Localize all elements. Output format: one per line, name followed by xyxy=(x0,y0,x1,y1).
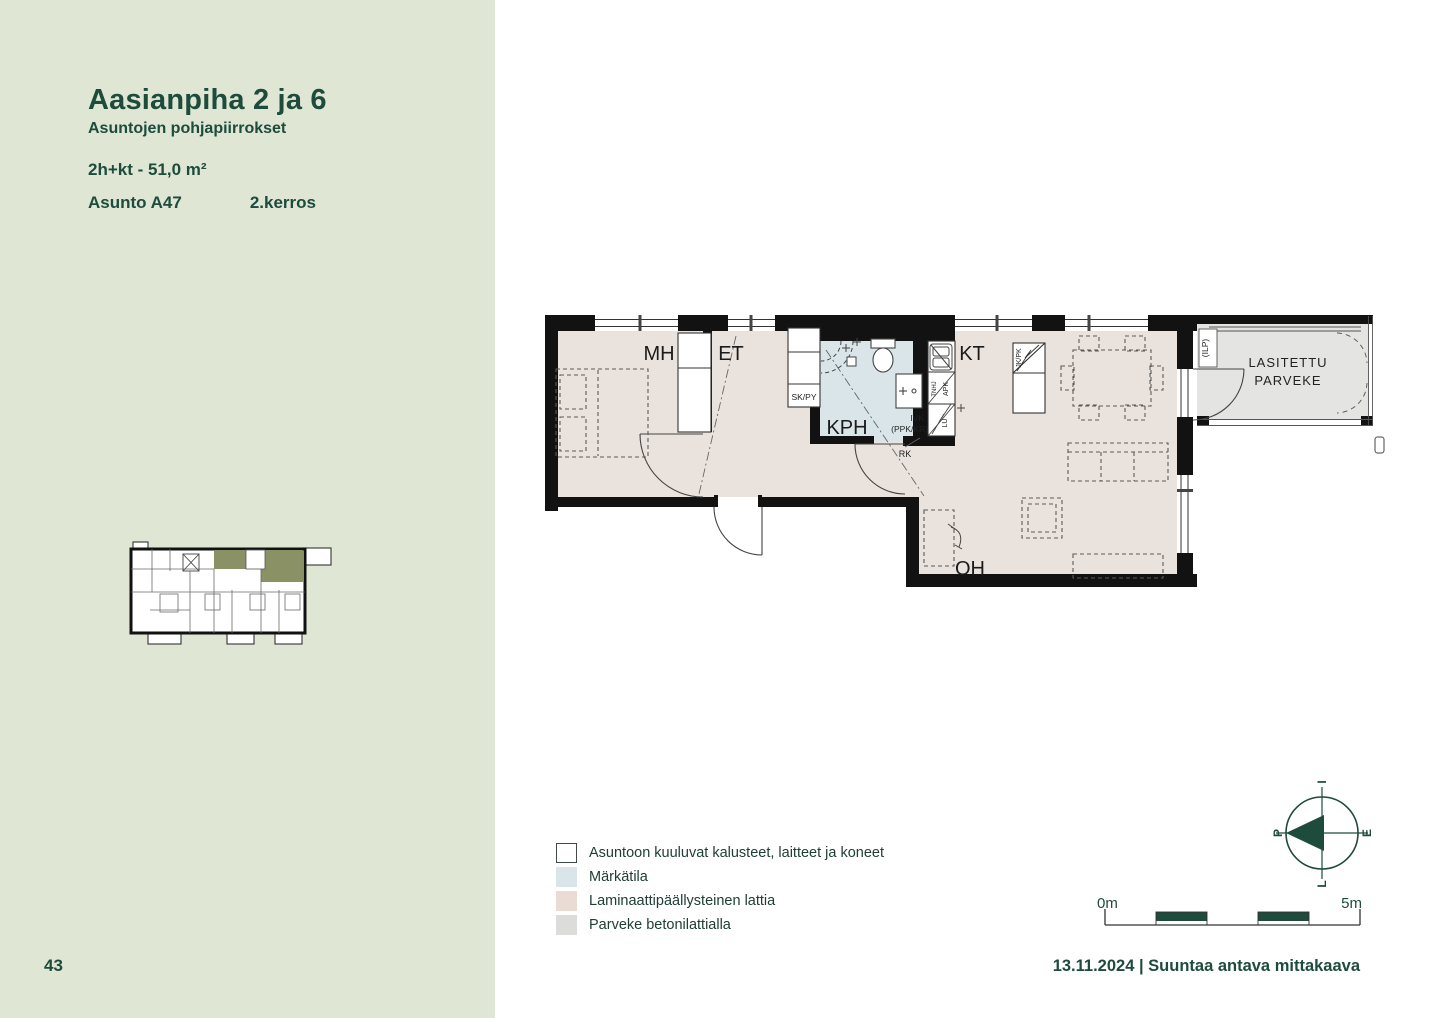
page-subtitle: Asuntojen pohjapiirrokset xyxy=(88,120,327,138)
room-label-kitchen: KT xyxy=(959,343,985,365)
overview-stairwell-icon xyxy=(183,554,199,571)
compass-label-right: E xyxy=(1360,829,1374,837)
toilet xyxy=(871,339,895,372)
legend-label: Laminaattipäällysteinen lattia xyxy=(589,893,775,909)
footer-note: 13.11.2024 | Suuntaa antava mittakaava xyxy=(1053,957,1360,976)
balcony-label-line2: PARVEKE xyxy=(1254,373,1321,388)
living-room-window xyxy=(1177,475,1193,553)
room-label-entry: ET xyxy=(718,343,744,365)
balcony-floor xyxy=(1197,324,1369,420)
room-label-living: OH xyxy=(955,558,985,580)
legend-item: Parveke betonilattialla xyxy=(556,913,884,937)
heat-pump-label: (ILP) xyxy=(1200,339,1210,358)
compass-label-bottom: L xyxy=(1315,880,1329,887)
legend-label: Asuntoon kuuluvat kalusteet, laitteet ja… xyxy=(589,845,884,861)
overview-wing-extension xyxy=(303,548,331,565)
compass-icon: I P E L xyxy=(1270,775,1380,890)
scale-start-label: 0m xyxy=(1097,895,1118,912)
legend-swatch-laminate xyxy=(556,891,577,911)
legend-label: Parveke betonilattialla xyxy=(589,917,731,933)
dishwasher-label: APK xyxy=(943,382,950,396)
compass-north-needle xyxy=(1286,815,1324,851)
unit-floor: 2.kerros xyxy=(250,193,316,213)
bathroom-sink xyxy=(896,374,922,408)
balcony-door xyxy=(1177,369,1193,417)
legend-swatch-wet-room xyxy=(556,867,577,887)
legend-item: Laminaattipäällysteinen lattia xyxy=(556,889,884,913)
room-label-bedroom: MH xyxy=(643,343,674,365)
legend-swatch-furniture xyxy=(556,843,577,863)
floor-plan: (ILP) SK/PY xyxy=(540,300,1390,600)
sidebar: Aasianpiha 2 ja 6 Asuntojen pohjapiirrok… xyxy=(0,0,495,1018)
legend-item: Märkätila xyxy=(556,865,884,889)
fridge-label: JK/PK xyxy=(1016,348,1023,368)
stove-label: LU xyxy=(942,419,949,428)
closet-label: SK/PY xyxy=(791,392,816,402)
vent-label-1: IVK xyxy=(910,413,924,423)
room-label-bathroom: KPH xyxy=(826,417,867,439)
counter-label: TNHJ xyxy=(932,381,938,396)
legend-swatch-balcony xyxy=(556,915,577,935)
unit-type: 2h+kt - 51,0 m² xyxy=(88,160,316,180)
unit-name: Asunto A47 xyxy=(88,193,182,213)
building-overview-map xyxy=(125,540,335,652)
floorplan-page: { "page": {"background": "#ffffff", "acc… xyxy=(0,0,1440,1018)
vent-label-2: (PPK/KR) xyxy=(891,424,928,434)
legend-item: Asuntoon kuuluvat kalusteet, laitteet ja… xyxy=(556,841,884,865)
balcony-label-line1: LASITETTU xyxy=(1248,355,1327,370)
downspout xyxy=(1375,437,1384,453)
legend: Asuntoon kuuluvat kalusteet, laitteet ja… xyxy=(556,841,884,937)
unit-spec-block: 2h+kt - 51,0 m² Asunto A47 2.kerros xyxy=(88,160,316,213)
electric-panel-label: RK xyxy=(899,449,912,459)
scale-segment-filled xyxy=(1258,912,1309,921)
scale-end-label: 5m xyxy=(1341,895,1362,912)
page-number: 43 xyxy=(44,956,63,976)
compass-label-top: I xyxy=(1315,780,1329,783)
title-block: Aasianpiha 2 ja 6 Asuntojen pohjapiirrok… xyxy=(88,84,327,138)
compass-label-left: P xyxy=(1271,829,1285,837)
overview-shaft xyxy=(246,550,265,569)
scale-bar: 0m 5m xyxy=(1090,890,1370,935)
wardrobe xyxy=(678,333,711,432)
page-title: Aasianpiha 2 ja 6 xyxy=(88,84,327,117)
heat-pump-reservation: (ILP) xyxy=(1199,329,1217,367)
legend-label: Märkätila xyxy=(589,869,648,885)
scale-segment-filled xyxy=(1156,912,1207,921)
